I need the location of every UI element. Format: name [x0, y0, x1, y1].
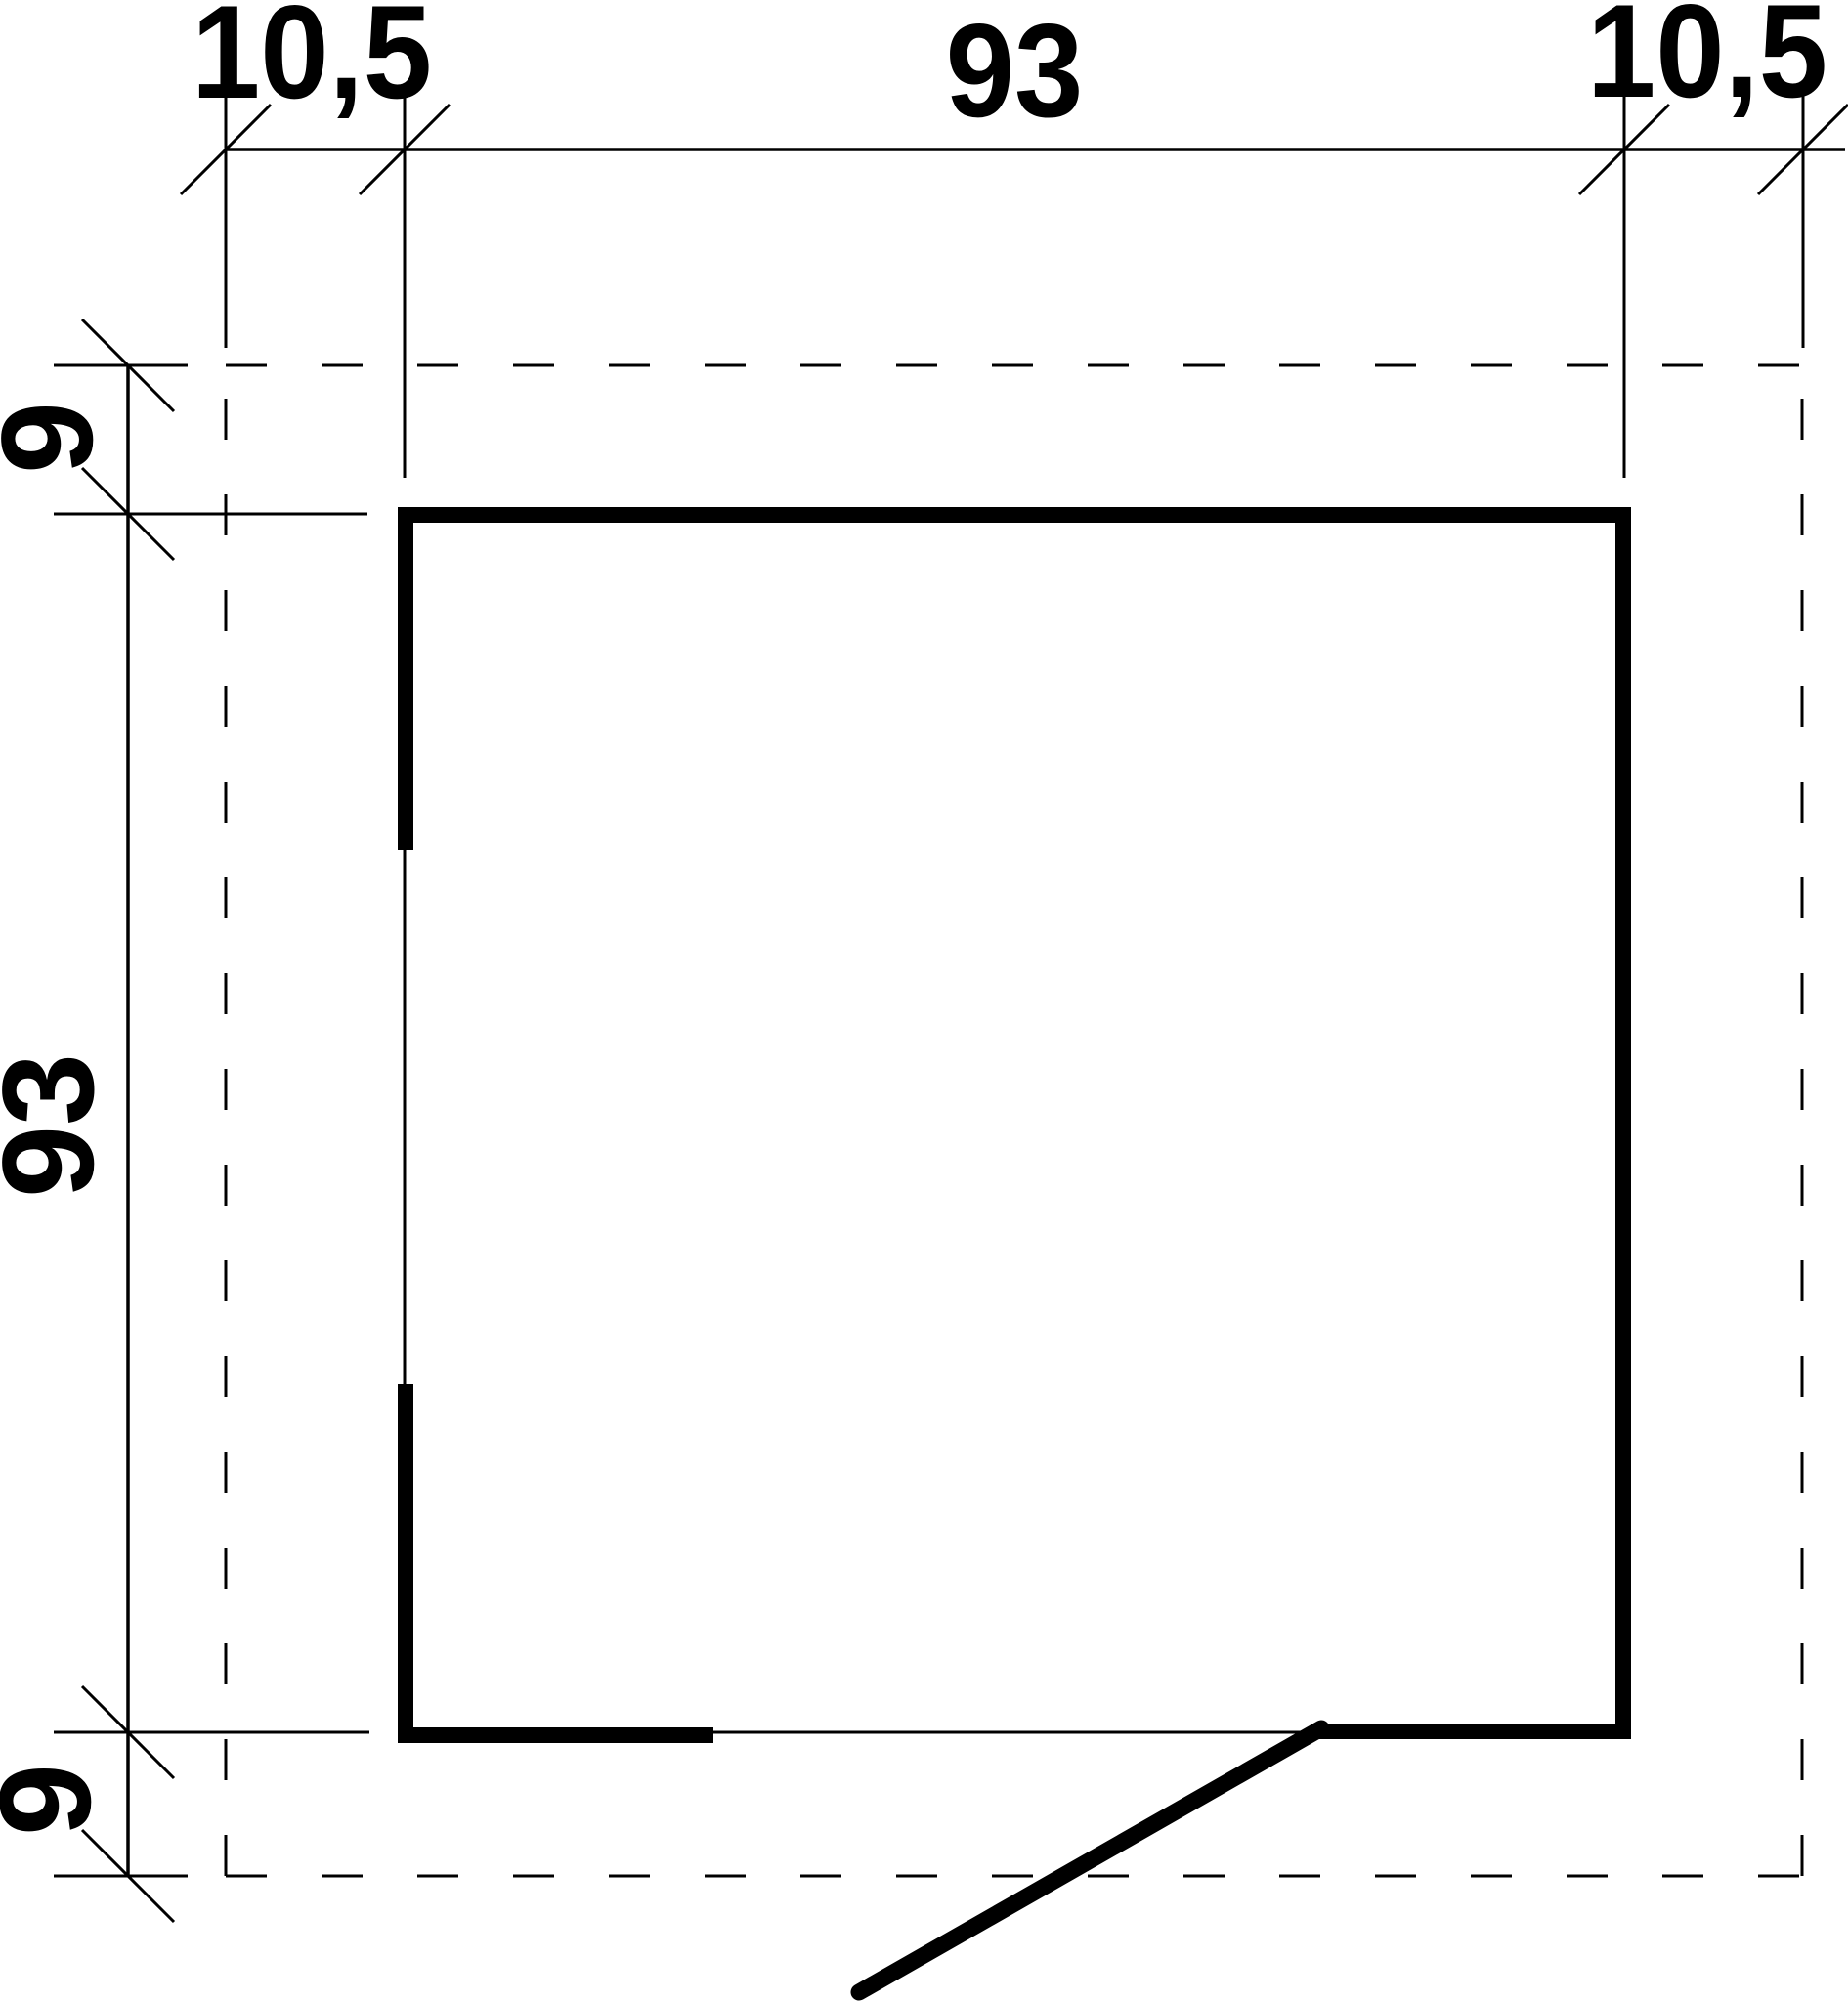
svg-text:93: 93 — [0, 1053, 121, 1198]
svg-text:9: 9 — [0, 1764, 118, 1836]
svg-text:93: 93 — [946, 0, 1084, 145]
svg-text:9: 9 — [0, 402, 120, 474]
svg-text:10,5: 10,5 — [192, 0, 432, 126]
svg-text:10,5: 10,5 — [1587, 0, 1827, 125]
